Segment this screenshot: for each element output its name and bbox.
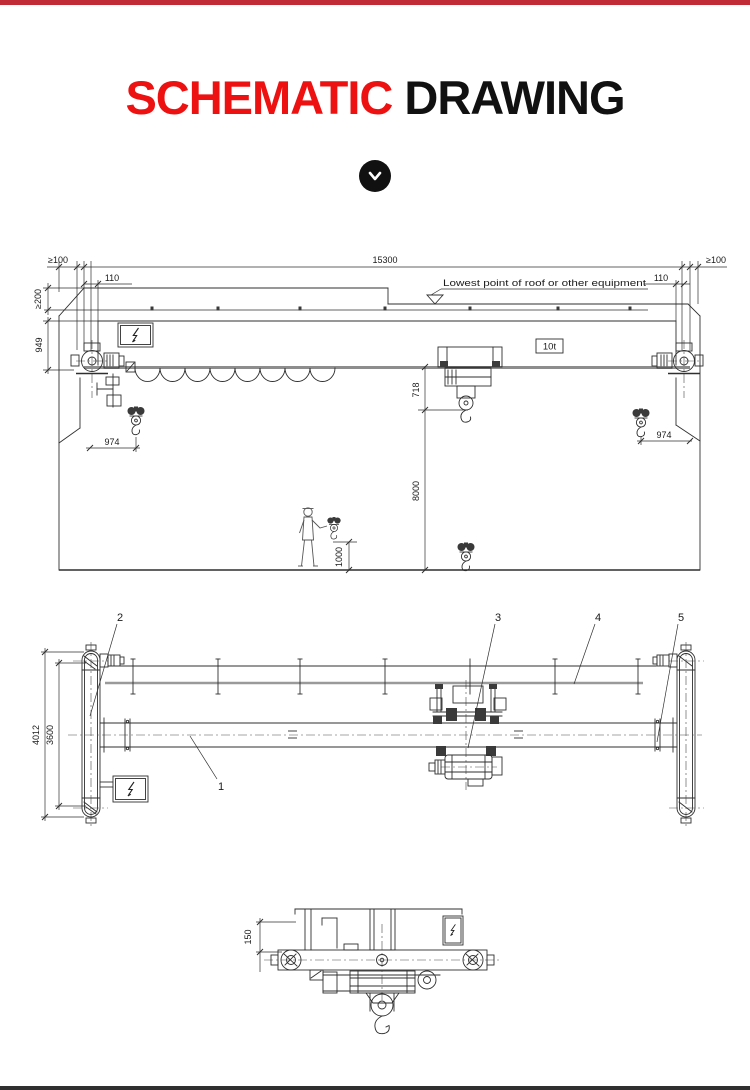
part-label-5: 5 [678, 612, 684, 624]
plan-electric-panel [100, 776, 148, 802]
top-accent-bar [0, 0, 750, 5]
plan-festoon-rail [105, 659, 656, 694]
part-label-1: 1 [218, 781, 224, 793]
crane-girder: 10t [44, 307, 690, 382]
end-view-upper-structure [295, 909, 463, 950]
dim-end-clearance-right: 110 [654, 273, 668, 283]
top-dimension-chain: ≥100 15300 ≥100 110 110 [47, 255, 727, 350]
dim-span: 15300 [372, 255, 397, 265]
dim-overall-width: 4012 [31, 725, 41, 745]
hoist-trolley [438, 347, 502, 422]
hook-right [633, 409, 650, 437]
dim-1000: 1000 [333, 539, 357, 573]
front-elevation-view: ≥100 15300 ≥100 110 110 ≥200 [33, 255, 727, 573]
crane-hook [375, 1016, 389, 1034]
title-secondary: DRAWING [404, 71, 624, 124]
end-view-carriage-beam [264, 924, 500, 1000]
dim-lifting-height: 8000 [411, 481, 421, 501]
dim-end-clearance-left: 110 [105, 273, 119, 283]
part-label-4: 4 [595, 612, 601, 624]
plan-end-carriage-left [73, 642, 124, 826]
part-label-3: 3 [495, 612, 501, 624]
page: SCHEMATIC DRAWING [0, 0, 750, 1090]
scroll-down-button[interactable] [359, 160, 391, 192]
hook-at-worker [327, 517, 340, 539]
roof-note-text: Lowest point of roof or other equipment [443, 278, 647, 288]
plan-end-carriage-right [653, 642, 704, 826]
lightning-icon [133, 328, 139, 342]
chevron-down-icon [366, 169, 384, 183]
dim-718-8000: 718 8000 [411, 364, 468, 573]
end-truck-left [71, 340, 124, 407]
festoon-cable-loops [135, 368, 335, 382]
dim-crane-height: 949 [34, 337, 44, 352]
capacity-badge: 10t [536, 339, 563, 353]
svg-text:974: 974 [104, 437, 119, 447]
lightning-icon [451, 924, 456, 935]
part-labels: 2 3 4 5 1 [90, 612, 684, 793]
dim-wheelbase: 3600 [45, 725, 55, 745]
building-outline [59, 288, 700, 570]
lightning-icon [128, 782, 134, 796]
end-view: 150 [243, 909, 500, 1034]
bottom-accent-bar [0, 1086, 750, 1090]
svg-text:1000: 1000 [334, 547, 344, 567]
part-label-2: 2 [117, 612, 123, 624]
hook-left [128, 407, 145, 435]
dim-974-left: 974 [86, 437, 140, 452]
dim-974-right: 974 [637, 430, 693, 445]
plan-view: 4012 3600 [31, 612, 704, 826]
capacity-text: 10t [543, 342, 557, 353]
dim-top-clearance: ≥200 [33, 289, 43, 309]
schematic-drawing: ≥100 15300 ≥100 110 110 ≥200 [0, 230, 750, 1090]
dim-side-clearance-left: ≥100 [48, 255, 68, 265]
plan-dimensions: 4012 3600 [31, 648, 86, 821]
end-view-hoist [310, 970, 440, 1034]
electric-panel [118, 323, 153, 347]
roof-note: Lowest point of roof or other equipment [427, 278, 648, 304]
dim-headroom: 718 [411, 382, 421, 397]
svg-text:150: 150 [243, 929, 253, 944]
dim-side-clearance-right: ≥100 [706, 255, 726, 265]
hook-lowered [458, 543, 475, 571]
page-title: SCHEMATIC DRAWING [0, 70, 750, 125]
title-primary: SCHEMATIC [125, 71, 392, 124]
plan-girder [68, 718, 702, 752]
worker-figure [298, 508, 327, 566]
svg-text:974: 974 [656, 430, 671, 440]
